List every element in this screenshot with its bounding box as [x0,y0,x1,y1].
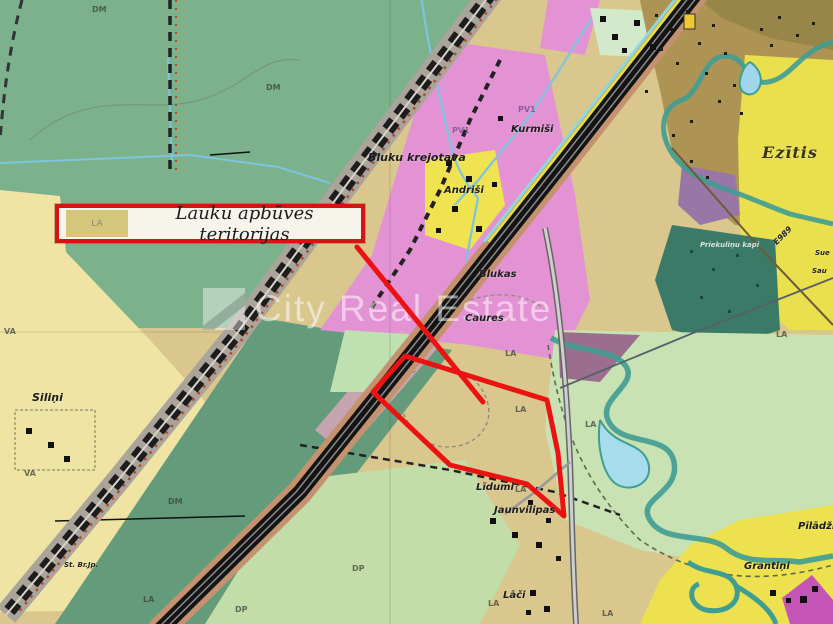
zone-code-pv1: PV1 [452,127,470,135]
red-annotation-overlay [0,0,833,624]
zone-code-la: LA [143,596,154,604]
place-label-kapi: Priekuliņu kapi [700,242,759,249]
zone-code-la: LA [776,331,787,339]
zone-code-dm: DM [266,84,281,92]
place-label-laci: Lāči [503,591,525,601]
edge-label-1: Sue [815,250,830,257]
place-label-bluku-krejotava: Bluku krejotava [368,152,466,163]
zone-code-dm: DM [168,498,183,506]
place-label-grantini: Grantiņi [744,562,790,572]
zone-code-dp: DP [235,606,248,614]
legend-leader-line [357,247,483,402]
zone-code-va: VA [4,328,16,336]
place-label-br-jp: St. Br.Jp. [64,562,98,569]
zone-code-dp: DP [352,565,365,573]
zone-code-dm: DM [92,6,107,14]
map-canvas[interactable]: City Real Estate LA Lauku apbūves terito… [0,0,833,624]
edge-label-2: Sau [812,268,827,275]
place-label-caures: Caures [465,314,504,324]
zone-code-la: LA [515,486,526,494]
place-label-kurmisi: Kurmiši [511,125,553,135]
place-label-ezitis: Ezītis [762,145,818,161]
zone-code-la: LA [505,350,516,358]
zone-code-la: LA [585,421,596,429]
zone-code-la: LA [488,600,499,608]
legend-box: LA Lauku apbūves teritorijas [55,204,365,243]
legend-swatch-code: LA [91,219,102,229]
zone-code-la: LA [602,610,613,618]
place-label-andrisi: Andriši [444,186,484,196]
place-label-silini: Siliņi [32,392,63,403]
zone-code-pv1: PV1 [518,106,536,114]
legend-swatch: LA [66,210,128,237]
place-label-jaunvilipas: Jaunvilipas [494,506,555,516]
legend-label: Lauku apbūves teritorijas [128,203,361,245]
place-label-piladzi: Pīlādži [798,522,833,532]
place-label-blukas: Blukas [479,270,517,280]
place-label-lidumi: Līdumi [476,483,514,493]
zone-code-la: LA [515,406,526,414]
highlighted-parcel-outline [373,356,564,516]
zone-code-va: VA [24,470,36,478]
